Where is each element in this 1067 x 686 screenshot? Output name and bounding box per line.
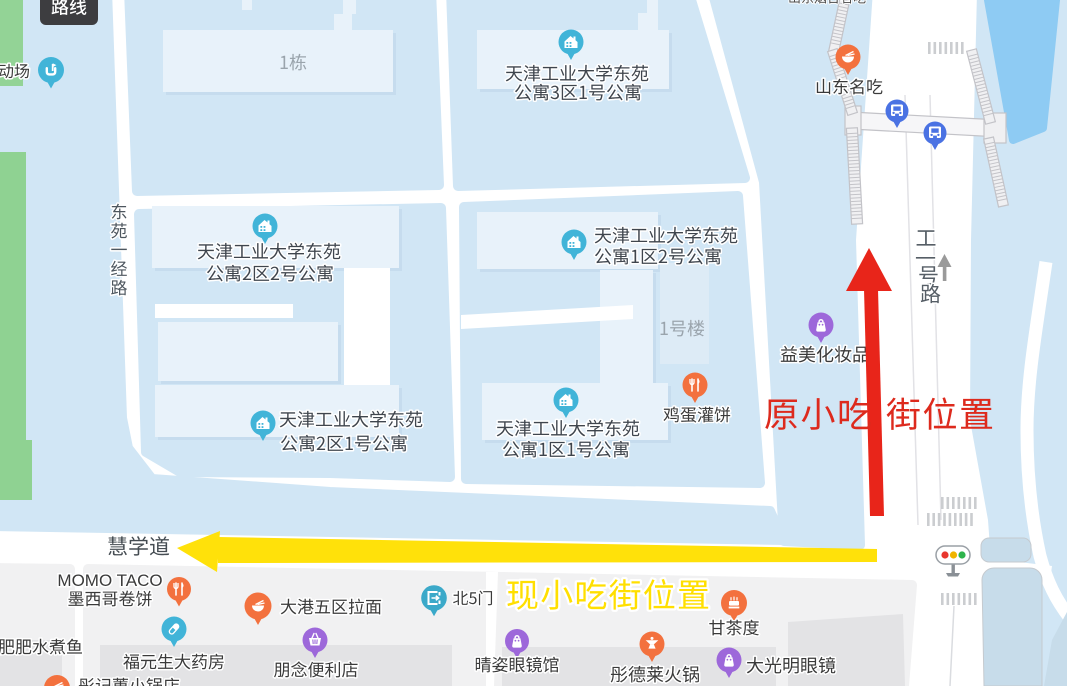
svg-text:MOMO TACO: MOMO TACO <box>57 571 162 590</box>
